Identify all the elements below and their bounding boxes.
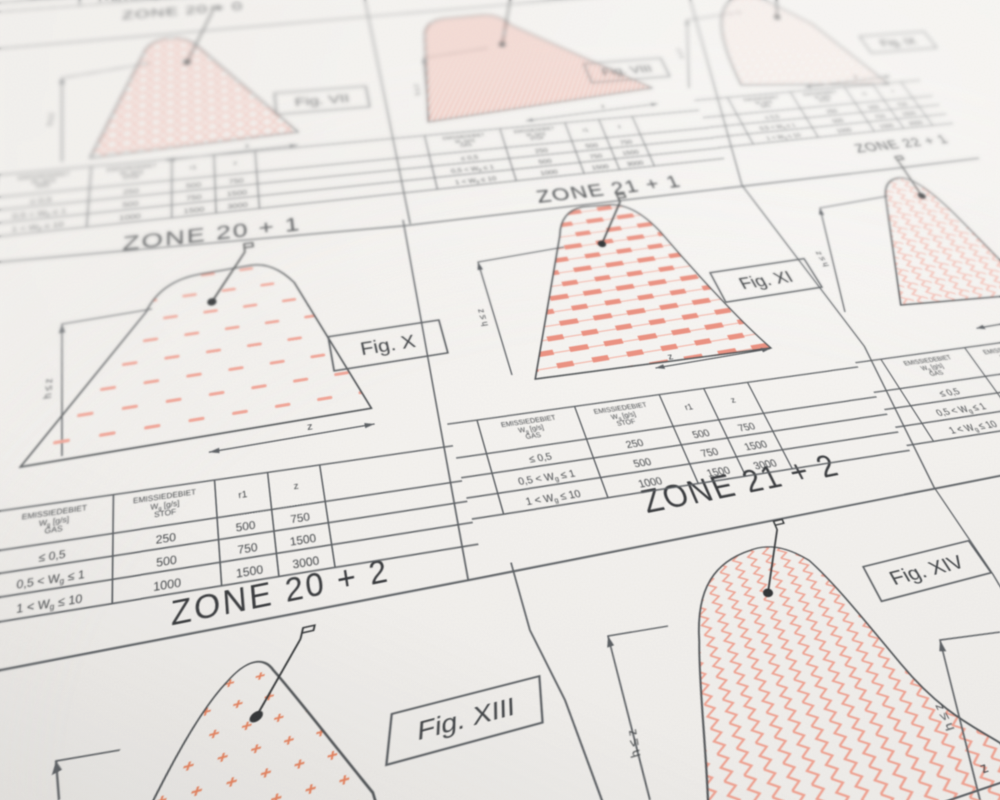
svg-text:750: 750	[290, 510, 312, 526]
svg-text:750: 750	[698, 445, 720, 459]
svg-text:r1: r1	[582, 128, 590, 133]
svg-text:Fig. XI: Fig. XI	[735, 268, 796, 293]
svg-text:750: 750	[237, 540, 259, 557]
svg-text:1500: 1500	[183, 206, 205, 215]
svg-text:h ≤ z: h ≤ z	[40, 378, 55, 400]
svg-text:z: z	[306, 420, 313, 432]
svg-text:h ≤ z: h ≤ z	[46, 113, 57, 126]
svg-text:GAS: GAS	[525, 432, 543, 441]
svg-text:750: 750	[736, 420, 758, 434]
svg-text:1000: 1000	[153, 575, 182, 594]
svg-text:Fig. XIII: Fig. XIII	[416, 693, 515, 747]
svg-text:500: 500	[122, 200, 139, 209]
svg-text:≤ 0,5: ≤ 0,5	[460, 154, 479, 162]
svg-text:Fig. VIII: Fig. VIII	[599, 63, 654, 78]
svg-text:≤ 0,5: ≤ 0,5	[527, 451, 553, 465]
svg-text:STOF: STOF	[529, 136, 545, 141]
svg-text:750: 750	[619, 139, 634, 146]
svg-text:500: 500	[831, 118, 845, 124]
svg-text:GAS: GAS	[44, 525, 63, 536]
svg-text:250: 250	[156, 530, 177, 547]
svg-text:500: 500	[156, 552, 177, 570]
svg-text:h ≤ z: h ≤ z	[675, 48, 687, 58]
svg-text:1000: 1000	[835, 127, 853, 134]
svg-text:1500: 1500	[289, 531, 317, 549]
svg-text:≤ 0,5: ≤ 0,5	[764, 114, 782, 121]
svg-text:h ≤ z: h ≤ z	[812, 251, 831, 267]
svg-text:r1: r1	[683, 401, 695, 412]
svg-text:GAS: GAS	[460, 143, 473, 148]
svg-text:750: 750	[589, 153, 604, 160]
svg-text:500: 500	[867, 105, 881, 111]
svg-text:750: 750	[186, 194, 202, 202]
svg-text:≤ 0,5: ≤ 0,5	[937, 386, 963, 398]
svg-text:1500: 1500	[227, 189, 248, 198]
svg-text:0,5 < Wg ≤ 1: 0,5 < Wg ≤ 1	[759, 123, 798, 132]
svg-text:z: z	[890, 89, 896, 93]
svg-text:500: 500	[690, 427, 712, 441]
svg-text:500: 500	[538, 158, 553, 165]
svg-text:h ≤ z: h ≤ z	[412, 84, 423, 96]
svg-text:h ≤ z: h ≤ z	[624, 728, 644, 760]
svg-text:3000: 3000	[907, 120, 925, 127]
svg-text:STOF: STOF	[818, 98, 832, 103]
svg-text:r1: r1	[190, 165, 197, 171]
svg-text:250: 250	[123, 188, 140, 196]
svg-text:r1: r1	[238, 488, 248, 501]
svg-text:750: 750	[229, 178, 245, 186]
svg-text:1500: 1500	[742, 438, 770, 453]
svg-text:500: 500	[585, 143, 600, 150]
svg-text:3000: 3000	[227, 202, 248, 211]
svg-text:z: z	[245, 143, 251, 150]
svg-text:GAS: GAS	[760, 104, 772, 109]
svg-text:1500: 1500	[591, 164, 611, 172]
svg-text:3000: 3000	[626, 160, 645, 168]
svg-text:500: 500	[235, 518, 256, 535]
svg-text:ZONE 20 + 0: ZONE 20 + 0	[122, 1, 244, 22]
svg-text:z: z	[600, 104, 607, 110]
svg-text:≤ 0,5: ≤ 0,5	[38, 548, 66, 565]
svg-text:Fig. VII: Fig. VII	[294, 92, 350, 109]
svg-text:Fig. IX: Fig. IX	[877, 36, 920, 49]
svg-text:GAS: GAS	[35, 183, 50, 189]
svg-text:h ≤ z: h ≤ z	[474, 308, 490, 327]
svg-text:z: z	[233, 161, 237, 167]
svg-text:500: 500	[186, 182, 202, 190]
svg-text:1500: 1500	[878, 123, 896, 130]
svg-text:250: 250	[624, 436, 646, 450]
svg-text:500: 500	[631, 455, 653, 470]
svg-text:1500: 1500	[621, 149, 640, 157]
svg-text:1000: 1000	[119, 213, 141, 222]
svg-text:z: z	[293, 480, 300, 492]
svg-text:Fig. X: Fig. X	[358, 331, 417, 359]
svg-text:GAS: GAS	[928, 370, 945, 378]
svg-text:1500: 1500	[901, 111, 919, 117]
svg-text:z: z	[617, 125, 622, 130]
svg-text:r1: r1	[861, 92, 869, 97]
svg-text:1 < Wg ≤ 10: 1 < Wg ≤ 10	[765, 133, 803, 142]
svg-text:≤ 0,5: ≤ 0,5	[30, 196, 53, 205]
svg-text:750: 750	[873, 114, 887, 120]
svg-text:z: z	[728, 395, 737, 405]
svg-text:750: 750	[896, 102, 910, 108]
svg-text:1000: 1000	[539, 169, 559, 177]
svg-text:250: 250	[825, 109, 839, 115]
svg-text:250: 250	[534, 148, 549, 155]
svg-text:EMISSIEDEBIET: EMISSIEDEBIET	[982, 344, 1000, 356]
svg-text:0,5 < Wg ≤ 1: 0,5 < Wg ≤ 1	[16, 568, 86, 594]
